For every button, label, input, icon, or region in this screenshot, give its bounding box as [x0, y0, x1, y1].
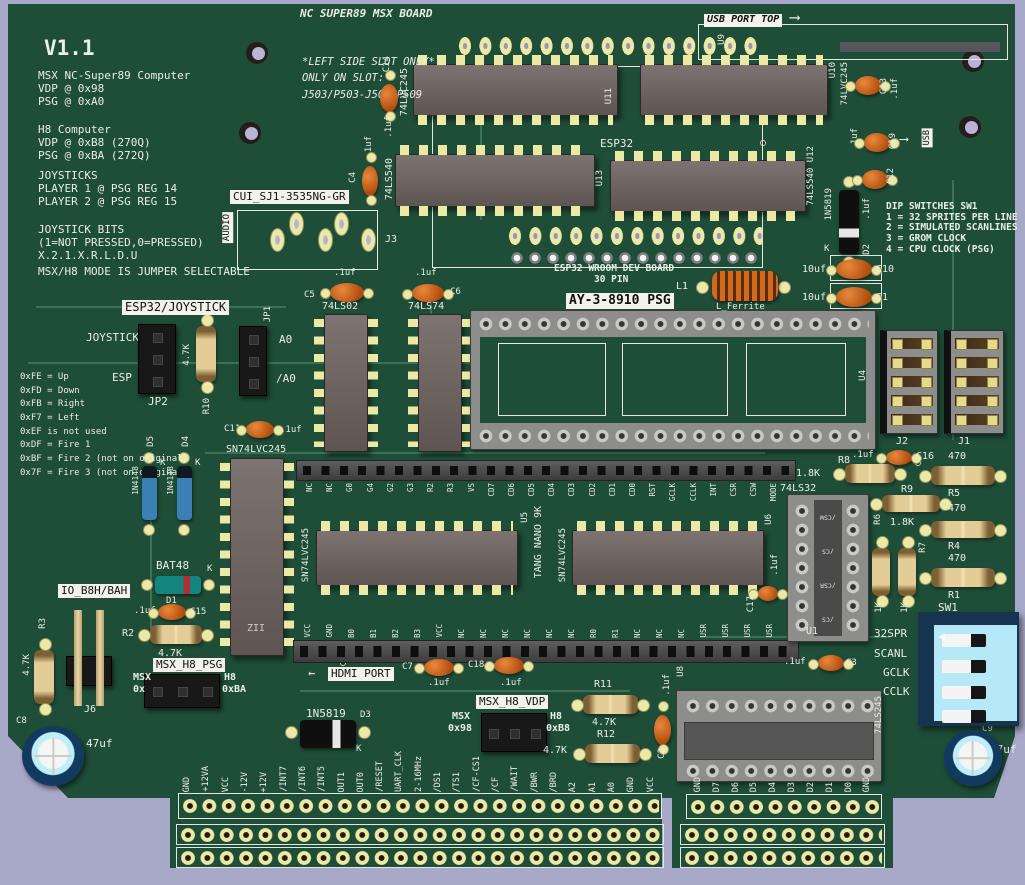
u4-window-outline — [498, 343, 606, 416]
c11-capacitor — [246, 421, 274, 438]
pin-label: CCLK — [690, 483, 698, 501]
usb-label: USB — [922, 128, 933, 147]
jp2-joystick-label: JOYSTICK — [86, 332, 139, 345]
c14-value: .1uf — [384, 116, 395, 138]
jp1-na0-label: /A0 — [276, 373, 296, 386]
u5-part-label: SN74LVC245 — [301, 528, 312, 582]
tang-pin-strip-top — [296, 460, 796, 481]
jp2-ref: JP2 — [148, 396, 168, 409]
pin-label: VCC — [304, 624, 312, 638]
pin-label: R1 — [612, 629, 620, 638]
r11-value: 4.7K — [592, 717, 616, 729]
j1-ref: J1 — [958, 436, 970, 448]
pin-label: /CF-CS1 — [473, 756, 482, 792]
sw1-label-scanl: SCANL — [874, 648, 907, 661]
jp3-h8-label: H8 — [224, 672, 236, 684]
pin-label: 2-16MHz — [415, 756, 424, 792]
pin-label: +12VA — [202, 766, 211, 792]
pcb-render-canvas: { "colors": {"pcb_green":"#1e4d38","silk… — [0, 0, 1025, 885]
d5-diode — [142, 466, 157, 520]
pin-label: /BWR — [531, 772, 540, 792]
r8-value: 1.8K — [796, 468, 820, 480]
u9-ref: U9 — [717, 34, 728, 45]
l1-ref: L1 — [676, 281, 688, 293]
c10-ref: C10 — [876, 264, 894, 276]
d5-k-label: K — [160, 458, 165, 469]
c16-value: .1uf — [852, 450, 874, 461]
pin-label: CD4 — [548, 483, 556, 497]
c8-capacitor — [22, 726, 84, 786]
pin-label: A0 — [608, 782, 617, 792]
u7-buffer-chip: ZII — [230, 458, 284, 656]
pin-label: USR — [766, 624, 774, 638]
mounting-hole — [239, 122, 261, 144]
pin-label: GCLK — [669, 483, 677, 501]
r7-value: 1K — [900, 602, 911, 613]
c6-value: .1uf — [415, 268, 437, 279]
c13-value: .1uf — [890, 78, 901, 100]
trace — [205, 452, 765, 454]
usb-port-slot — [840, 42, 1000, 52]
r6-resistor — [872, 548, 890, 596]
esp32-label: ESP32 — [600, 138, 633, 151]
sw1-label-cclk: CCLK — [883, 686, 910, 699]
d1-diode — [155, 576, 201, 594]
note-line: PSG @ 0xA0 — [38, 96, 190, 109]
jp1-a0-label: A0 — [279, 334, 292, 347]
note-joysticks: JOYSTICKSPLAYER 1 @ PSG REG 14PLAYER 2 @… — [38, 170, 177, 209]
c8-ref: C8 — [16, 716, 27, 727]
c7-ref: C7 — [402, 662, 413, 673]
u8-socket-hole-row — [684, 697, 874, 715]
d1-k-label: K — [207, 564, 212, 575]
c1-value: 10uf — [802, 292, 826, 304]
d2-k-label: K — [824, 244, 829, 255]
r5-resistor — [931, 466, 995, 485]
pin-label: /RESET — [376, 761, 385, 792]
u5-chip — [316, 530, 518, 586]
jp3-msx-label: MSX — [133, 672, 151, 684]
c4-capacitor — [362, 166, 378, 196]
c8-value: 47uf — [86, 738, 113, 751]
u4-socket-hole-row — [477, 315, 869, 333]
pin-label: R2 — [427, 483, 435, 492]
pin-label: OUT1 — [338, 772, 347, 792]
d2-c-value: .1uf — [862, 198, 873, 220]
pin-label: R3 — [447, 483, 455, 492]
hdmi-arrow-icon: ← — [308, 666, 315, 680]
sw1-arrow-icon: ◀ — [938, 630, 945, 643]
pin-label: GND — [627, 777, 636, 792]
d2-diode — [839, 190, 859, 254]
c14-capacitor — [380, 84, 398, 112]
tab-header-holes — [683, 825, 882, 845]
r8-resistor — [845, 464, 895, 483]
note-slot: *LEFT SIDE SLOT ONLY*ONLY ON SLOT:J503/P… — [302, 54, 435, 103]
u13-ref: U13 — [595, 170, 606, 186]
d1-part-label: BAT48 — [156, 560, 189, 573]
c18-ref: C18 — [468, 660, 484, 671]
pin-label: NC — [502, 629, 510, 638]
pin-label: MODE — [770, 483, 778, 501]
note-line: J503/P503-J509/P509 — [302, 87, 435, 103]
tang-pin-strip-bottom — [293, 640, 799, 663]
sw1-label-32spr: 32SPR — [874, 628, 907, 641]
pin-label: D1 — [826, 782, 835, 792]
pin-label: GND — [694, 777, 703, 792]
r5-ref: R5 — [948, 488, 960, 500]
board-version: V1.1 — [44, 36, 95, 61]
j2-ref: J2 — [896, 436, 908, 448]
trace — [300, 690, 630, 692]
pin-label: NC — [326, 483, 334, 492]
pin-label: CD2 — [589, 483, 597, 497]
c13-capacitor — [855, 76, 881, 95]
u13-chip — [395, 154, 595, 207]
note-line: 0xF7 = Left — [20, 412, 188, 426]
board-title: NC SUPER89 MSX BOARD — [300, 8, 432, 21]
pin-label: R0 — [590, 629, 598, 638]
u13-part-label: 74LS540 — [384, 158, 396, 200]
audio-pad — [318, 228, 333, 252]
pin-label: NC — [634, 629, 642, 638]
pin-label: VCC — [222, 777, 231, 792]
c1-capacitor — [836, 287, 872, 307]
pin-label: D3 — [788, 782, 797, 792]
l1-pad — [696, 281, 709, 294]
ls02-part-label: 74LS02 — [322, 301, 358, 313]
c15-ref: C15 — [190, 607, 206, 618]
pin-label: G3 — [407, 483, 415, 492]
chip-marking: ZII — [247, 623, 265, 634]
c16-capacitor — [886, 450, 912, 465]
audio-pad — [270, 228, 285, 252]
note-line: 3 = GROM CLOCK — [886, 234, 1018, 245]
note-line: PSG @ 0xBA (272Q) — [38, 150, 151, 163]
r4-value: 470 — [948, 503, 966, 515]
sw1-toggle-2 — [942, 660, 986, 673]
u10-ref: U10 — [828, 62, 839, 78]
d5-part-label: 1N4148 — [131, 466, 140, 495]
pin-label: /WAIT — [511, 766, 520, 792]
pin-label: VCC — [436, 624, 444, 638]
pin-label: B3 — [414, 629, 422, 638]
note-joystick-bits: JOYSTICK BITS(1=NOT PRESSED,0=PRESSED)X.… — [38, 224, 204, 263]
pin-label: D2 — [807, 782, 816, 792]
j6-pin — [74, 610, 82, 706]
note-line: PLAYER 1 @ PSG REG 14 — [38, 183, 177, 196]
socket-pin-label: /CS — [822, 548, 834, 555]
pin-label: USR — [744, 624, 752, 638]
c7-value: .1uf — [428, 678, 450, 689]
pin-label: G4 — [367, 483, 375, 492]
u6-chip — [572, 530, 764, 586]
u11-ref: U11 — [604, 88, 615, 104]
u1-socket-holes — [793, 502, 811, 634]
r3-ref: R3 — [38, 618, 49, 629]
esp32-pin-count: 30 PIN — [594, 274, 628, 285]
jp1-ref: JP1 — [263, 306, 274, 322]
sw1-toggle-4 — [942, 710, 986, 723]
c4-ref: C4 — [348, 172, 359, 183]
j3-ref: J3 — [385, 234, 397, 246]
pin-label: D5 — [750, 782, 759, 792]
r10-resistor — [196, 326, 216, 382]
u8-part-label: 74LS245 — [874, 696, 885, 734]
c13-ref: C13 — [879, 78, 890, 94]
hdmi-port-label: HDMI PORT — [328, 667, 394, 681]
d2-part-label: 1N5819 — [824, 188, 835, 221]
expansion-header-holes — [181, 796, 659, 816]
esp32-top-pin-row — [455, 36, 761, 56]
c12-ref: C12 — [886, 168, 897, 184]
pin-label: CD1 — [609, 483, 617, 497]
usb-arrow-icon: ⟶ — [900, 132, 908, 147]
expansion-pin-labels: GND+12VAVCC-12V+12V/INT7/INT6/INT5OUT1OU… — [183, 730, 655, 792]
pin-label: G0 — [346, 483, 354, 492]
note-h8: H8 ComputerVDP @ 0xB8 (270Q)PSG @ 0xBA (… — [38, 124, 151, 163]
pin-label: CD6 — [508, 483, 516, 497]
jp1-header — [239, 326, 267, 396]
note-line: PLAYER 2 @ PSG REG 15 — [38, 196, 177, 209]
pin-label: USR — [722, 624, 730, 638]
pin-label: CSR — [730, 483, 738, 497]
c18-capacitor — [494, 657, 524, 674]
u12-chip — [610, 160, 806, 212]
pin-label: /INT5 — [318, 766, 327, 792]
ls02-chip — [324, 314, 368, 452]
pin-label: B2 — [392, 629, 400, 638]
r7-resistor — [898, 548, 916, 596]
d4-part-label: 1N4148 — [166, 466, 175, 495]
note-line: X.2.1.X.R.L.D.U — [38, 250, 204, 263]
c15-capacitor — [158, 604, 186, 620]
mounting-hole — [246, 42, 268, 64]
c3-value: .1uf — [784, 657, 806, 668]
audio-pad — [289, 212, 304, 236]
sw1-toggle-1 — [942, 634, 986, 647]
l1-part-label: L_Ferrite — [716, 302, 765, 313]
audio-label: AUDIO — [222, 212, 233, 243]
pin-label: GND — [863, 777, 872, 792]
note-line: VDP @ 0x98 — [38, 83, 190, 96]
j6-pin — [96, 610, 104, 706]
r9-value: 1.8K — [890, 517, 914, 529]
note-line: 0xDF = Fire 1 — [20, 439, 188, 453]
u1-part-label: 74LS32 — [780, 483, 816, 495]
r3-resistor — [34, 650, 54, 704]
c19-capacitor — [864, 133, 890, 152]
audio-pad — [334, 212, 349, 236]
u1-socket-labels: /CSW/CS/CSR/CS — [814, 500, 842, 636]
pin-label: +12V — [260, 772, 269, 792]
pin-label: /DS1 — [434, 772, 443, 792]
note-line: 0xFE = Up — [20, 371, 188, 385]
pin-label: OUT0 — [357, 772, 366, 792]
c5-value: .1uf — [334, 268, 356, 279]
audio-pad — [361, 228, 376, 252]
pin-label: INT — [710, 483, 718, 497]
pin-label: D4 — [769, 782, 778, 792]
msx-h8-psg-label: MSX_H8_PSG — [153, 658, 225, 672]
r2-ref: R2 — [122, 628, 134, 640]
r4-ref: R4 — [948, 541, 960, 553]
r7-ref: R7 — [918, 542, 929, 553]
pin-label: D7 — [713, 782, 722, 792]
ls74-part-label: 74LS74 — [408, 301, 444, 313]
u11-part-label: 74LVC245 — [399, 68, 411, 116]
pin-label: CD0 — [629, 483, 637, 497]
pin-label: NC — [546, 629, 554, 638]
esp32-bottom-pad-row — [505, 226, 763, 246]
d1-pad — [141, 579, 153, 591]
psg-label: AY-3-8910 PSG — [566, 293, 674, 309]
note-line: ONLY ON SLOT: — [302, 70, 435, 86]
pin-label: CSW — [750, 483, 758, 497]
u1-socket-holes — [844, 502, 862, 634]
u4-window-outline — [622, 343, 728, 416]
pin-label: NC — [568, 629, 576, 638]
pin-label: VCC — [647, 777, 656, 792]
c2-ref: C2 — [657, 748, 668, 759]
msx-h8-vdp-label: MSX_H8_VDP — [476, 695, 548, 709]
note-line: (1=NOT PRESSED,0=PRESSED) — [38, 237, 204, 250]
d5-ref: D5 — [146, 436, 157, 447]
j1-connector — [944, 330, 1004, 434]
pin-label: GND — [326, 624, 334, 638]
socket-pin-label: /CSW — [820, 514, 836, 521]
j2-connector — [880, 330, 938, 434]
audio-jack-outline — [237, 210, 378, 270]
pin-label: /TS1 — [453, 772, 462, 792]
data-bus-pin-labels: GNDD7D6D5D4D3D2D1D0GND — [694, 760, 872, 792]
esp32-board-name: ESP32 WROOM DEV BOARD — [554, 263, 674, 274]
u8-ref: U8 — [676, 666, 687, 677]
u11-chip — [413, 64, 618, 116]
usb-port-top-label: USB PORT TOP — [704, 14, 782, 27]
j6-header-base — [66, 656, 112, 686]
io-b8h-bah-label: IO_B8H/BAH — [58, 584, 130, 598]
c2-value: .1uf — [662, 674, 673, 696]
jp3-h8-addr: 0xBA — [222, 684, 246, 696]
pin-label: A1 — [589, 782, 598, 792]
c3-capacitor — [818, 655, 844, 671]
pin-label: NC — [306, 483, 314, 492]
r11-ref: R11 — [594, 679, 612, 691]
j6-ref: J6 — [84, 704, 96, 716]
pin-label: B0 — [348, 629, 356, 638]
sw1-toggle-3 — [942, 686, 986, 699]
r6-value: 1K — [874, 602, 885, 613]
note-line: 4 = CPU CLOCK (PSG) — [886, 245, 1018, 256]
pin-label: CD3 — [568, 483, 576, 497]
mounting-hole — [959, 116, 981, 138]
d4-k-label: K — [195, 458, 200, 469]
r1-resistor — [931, 568, 995, 587]
c17-value: .1uf — [770, 554, 781, 576]
c6-capacitor — [412, 284, 444, 302]
socket-pin-label: /CSR — [820, 582, 836, 589]
c1-ref: C1 — [876, 292, 888, 304]
d1-pad — [203, 579, 215, 591]
pin-label: GND — [183, 777, 192, 792]
sw1-dip-switch: ◀ — [918, 612, 1019, 726]
c10-capacitor — [836, 259, 872, 279]
d2-ref: D2 — [862, 244, 873, 255]
c19-ref: C19 — [888, 133, 899, 149]
d4-ref: D4 — [181, 436, 192, 447]
pin-label: /BRD — [550, 772, 559, 792]
data-bus-header-holes — [689, 797, 879, 817]
pin-label: RST — [649, 483, 657, 497]
c6-ref: C6 — [450, 287, 461, 298]
d3-ref: D3 — [360, 710, 371, 721]
pin-label: B1 — [370, 629, 378, 638]
c7-capacitor — [424, 659, 454, 676]
note-line: 0x7F = Fire 3 (not on original) — [20, 467, 188, 481]
note-msx: MSX NC-Super89 ComputerVDP @ 0x98PSG @ 0… — [38, 70, 190, 109]
pin-label: NC — [480, 629, 488, 638]
c9-capacitor — [944, 730, 1002, 786]
r6-ref: R6 — [873, 514, 884, 525]
jp4-msx-label: MSX — [452, 711, 470, 723]
buffer-part-label: SN74LVC245 — [226, 444, 286, 456]
note-dip-switches: DIP SWITCHES SW11 = 32 SPRITES PER LINE2… — [886, 202, 1018, 255]
tab-header-holes — [179, 825, 661, 845]
u6-part-label: SN74LVC245 — [558, 528, 569, 582]
r4-resistor — [931, 521, 995, 538]
pin-label: CD5 — [528, 483, 536, 497]
u4-ref: U4 — [858, 370, 869, 381]
pin-label: NC — [656, 629, 664, 638]
r3-value: 4.7K — [22, 654, 33, 676]
socket-pin-label: /CS — [822, 616, 834, 623]
audio-part-label: CUI_SJ1-3535NG-GR — [230, 190, 349, 204]
tab-header-holes — [683, 848, 882, 868]
r11-resistor — [583, 695, 638, 714]
u4-socket-hole-row — [477, 427, 869, 445]
pin-label: NC — [678, 629, 686, 638]
pin-label: D6 — [732, 782, 741, 792]
r1-value: 470 — [948, 553, 966, 565]
c5-capacitor — [330, 283, 364, 302]
u1-ref: U1 — [806, 626, 818, 638]
pin-label: UART_CLK — [395, 751, 404, 792]
u6-ref: U6 — [764, 514, 775, 525]
c5-ref: C5 — [304, 290, 315, 301]
esp32-joystick-label: ESP32/JOYSTICK — [122, 300, 229, 315]
note-mode: MSX/H8 MODE IS JUMPER SELECTABLE — [38, 266, 250, 279]
pin-label: A2 — [569, 782, 578, 792]
sw1-label-gclk: GCLK — [883, 667, 910, 680]
note-line: *LEFT SIDE SLOT ONLY* — [302, 54, 435, 70]
c17-capacitor — [758, 586, 778, 601]
pin-label: NC — [524, 629, 532, 638]
c18-value: .1uf — [500, 678, 522, 689]
u4-window-outline — [746, 343, 846, 416]
r9-resistor — [882, 495, 940, 512]
r2-resistor — [150, 625, 202, 644]
ls74-chip — [418, 314, 462, 452]
pin-label: CD7 — [488, 483, 496, 497]
pin-label: NC — [458, 629, 466, 638]
jp3-msx-addr: 0x — [133, 684, 145, 696]
note-line: VDP @ 0xB8 (270Q) — [38, 137, 151, 150]
l1-ferrite-coil — [712, 271, 778, 301]
c3-ref: C3 — [846, 658, 857, 669]
u10-chip — [640, 64, 828, 116]
d5-pad — [143, 524, 155, 536]
